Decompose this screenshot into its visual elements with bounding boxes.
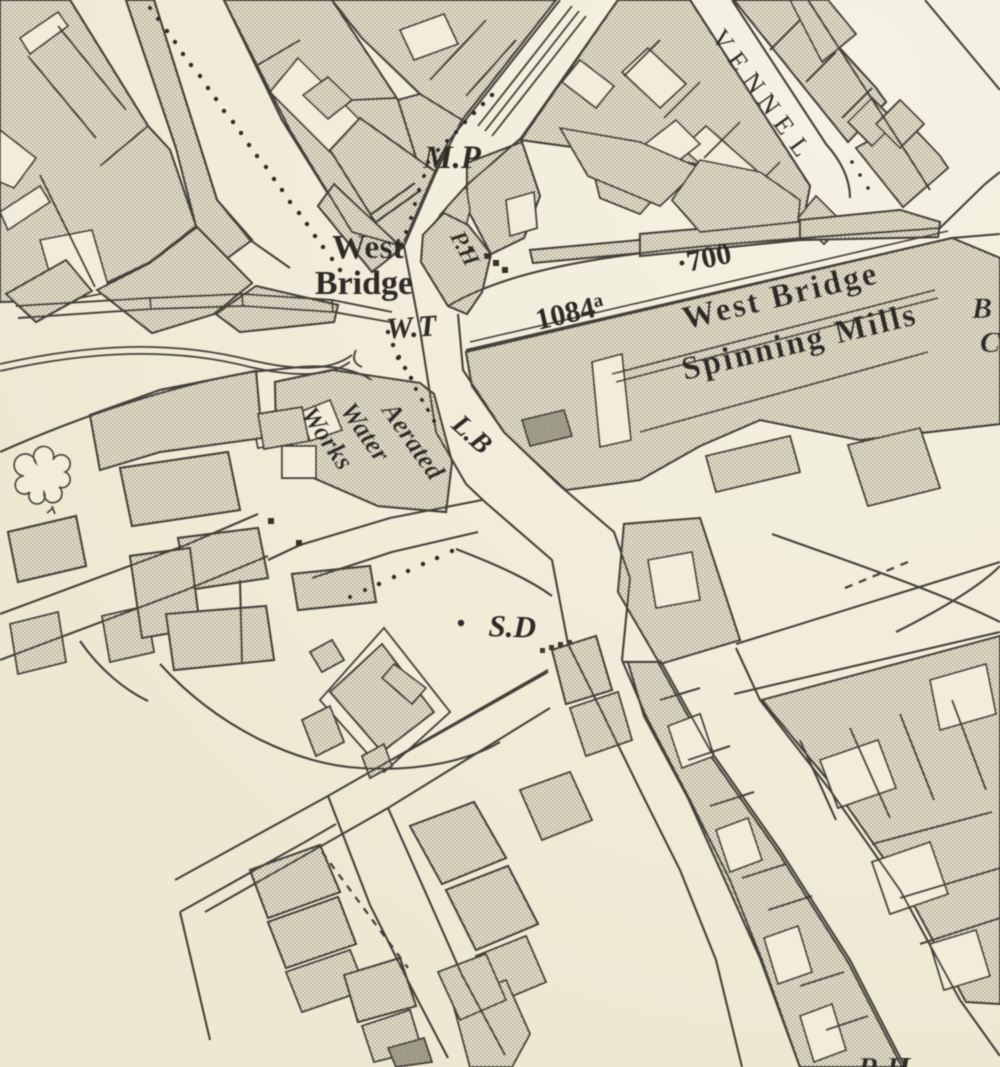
svg-text:West: West bbox=[332, 229, 404, 266]
svg-text:R.H: R.H bbox=[857, 1050, 911, 1067]
svg-text:W.T: W.T bbox=[385, 309, 439, 346]
svg-text:S.D: S.D bbox=[488, 608, 537, 645]
svg-text:Bridge: Bridge bbox=[315, 265, 413, 302]
svg-text:M.P: M.P bbox=[422, 140, 482, 176]
svg-text:B: B bbox=[971, 292, 992, 325]
svg-text:C: C bbox=[980, 326, 1000, 359]
